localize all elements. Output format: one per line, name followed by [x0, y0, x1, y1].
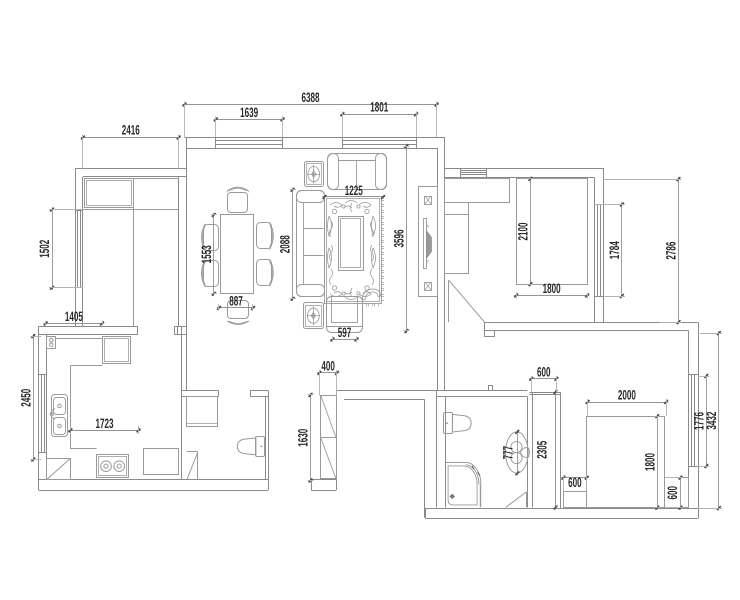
svg-text:6388: 6388 — [302, 90, 320, 105]
svg-text:1639: 1639 — [240, 105, 258, 120]
svg-text:1630: 1630 — [296, 429, 311, 447]
svg-text:2786: 2786 — [664, 241, 679, 259]
svg-text:3432: 3432 — [704, 411, 719, 429]
svg-text:1225: 1225 — [345, 183, 363, 198]
svg-text:1723: 1723 — [95, 416, 113, 431]
svg-text:2450: 2450 — [18, 389, 33, 407]
svg-text:600: 600 — [537, 364, 551, 379]
svg-text:400: 400 — [321, 358, 335, 373]
svg-text:777: 777 — [500, 446, 515, 460]
svg-text:597: 597 — [338, 325, 352, 340]
svg-text:1553: 1553 — [199, 245, 214, 263]
svg-text:1405: 1405 — [65, 309, 83, 324]
svg-text:1784: 1784 — [607, 241, 622, 259]
svg-text:3596: 3596 — [392, 229, 407, 247]
svg-text:1800: 1800 — [642, 453, 657, 471]
svg-text:2416: 2416 — [122, 123, 140, 138]
svg-text:1800: 1800 — [543, 281, 561, 296]
svg-text:2305: 2305 — [535, 440, 550, 458]
svg-text:1801: 1801 — [370, 100, 388, 115]
svg-text:2100: 2100 — [515, 223, 530, 241]
svg-text:600: 600 — [665, 486, 680, 500]
svg-text:2000: 2000 — [618, 388, 636, 403]
svg-text:887: 887 — [229, 293, 243, 308]
svg-text:2088: 2088 — [278, 235, 293, 253]
svg-text:600: 600 — [568, 475, 582, 490]
svg-text:1502: 1502 — [37, 239, 52, 257]
